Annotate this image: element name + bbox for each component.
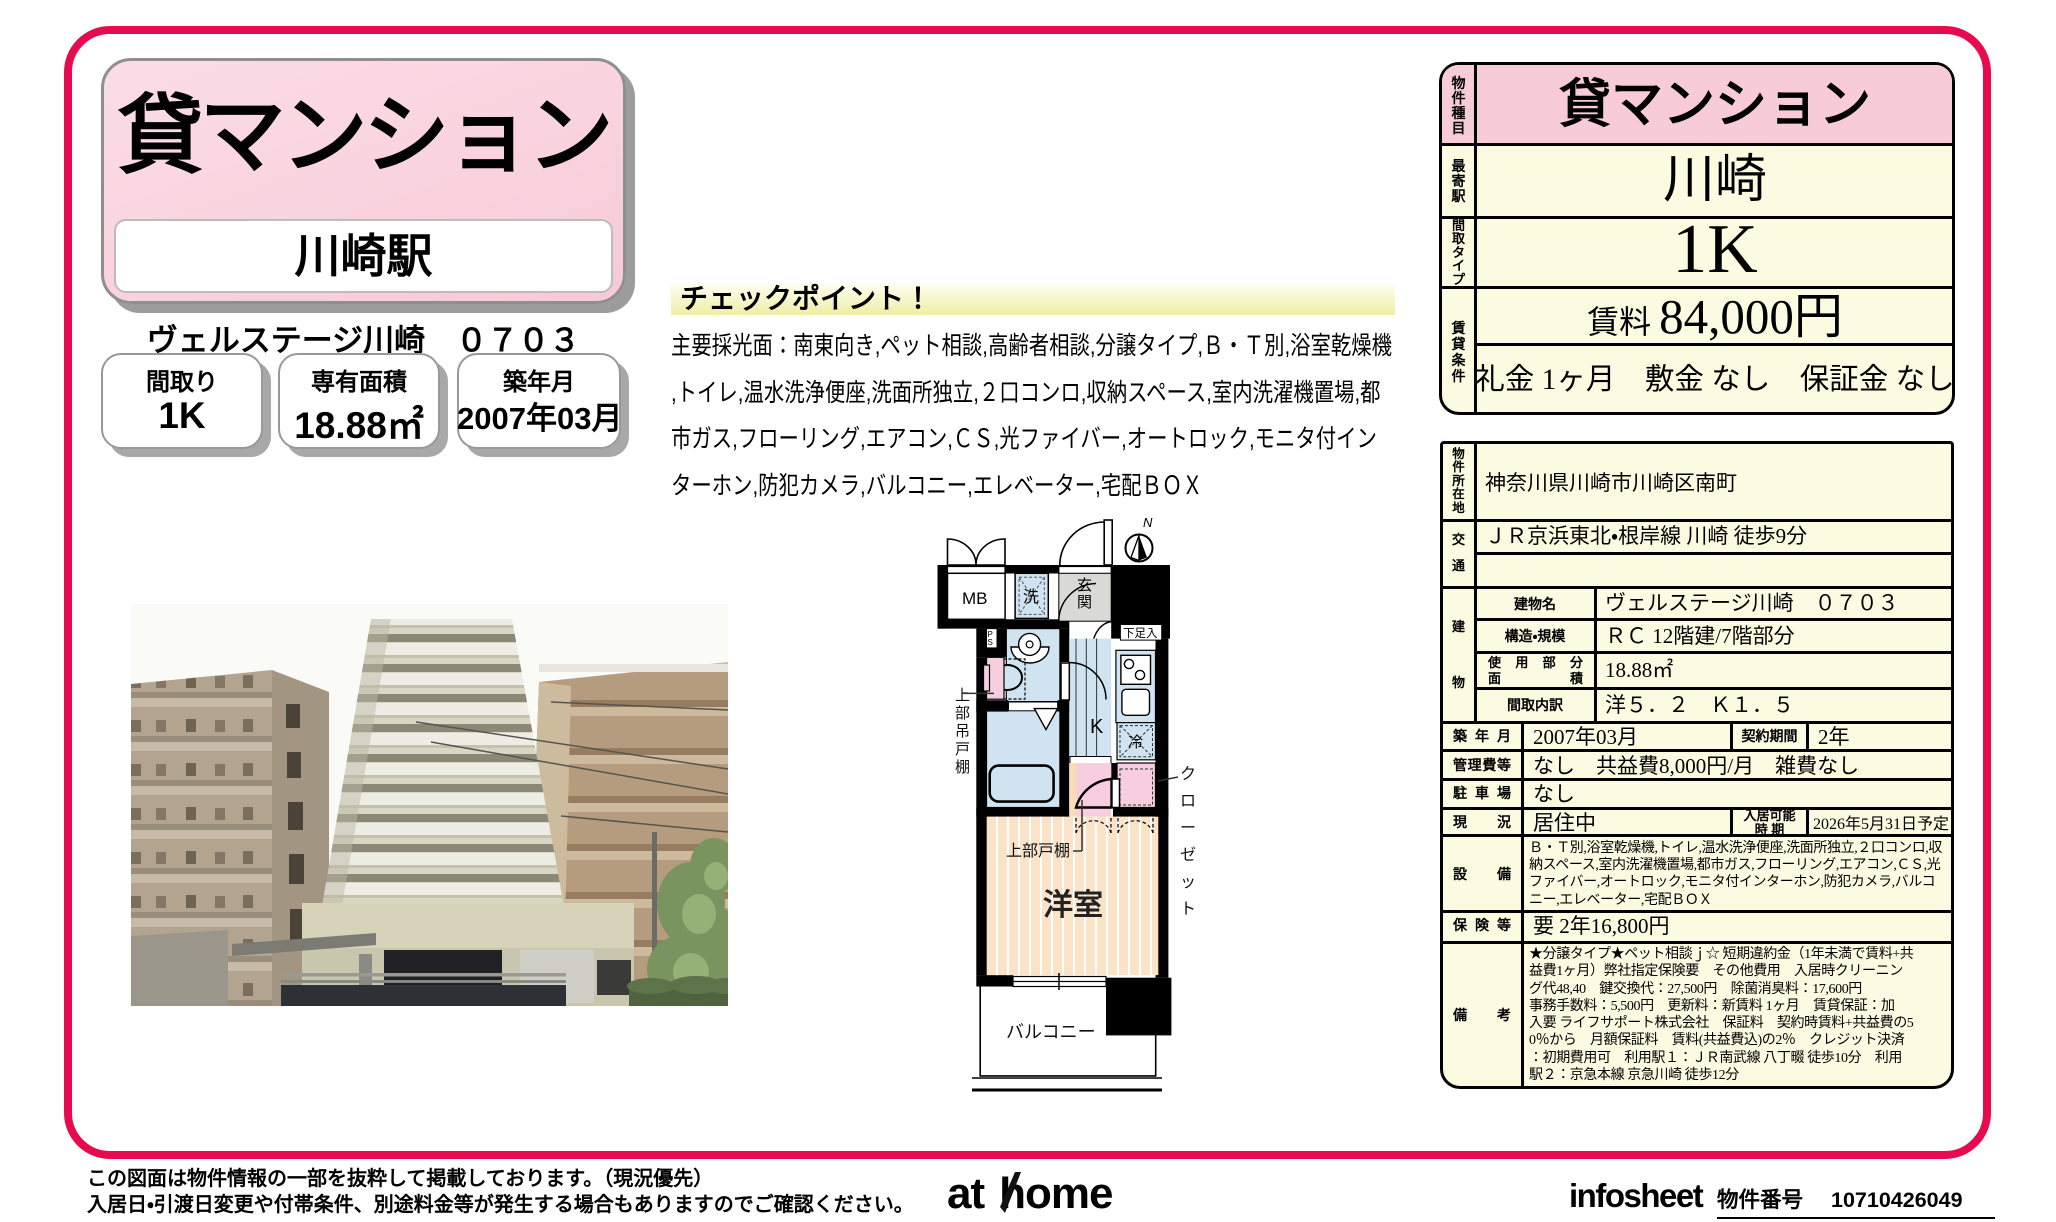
svg-text:S: S (988, 638, 993, 647)
svg-text:上部戸棚: 上部戸棚 (1006, 842, 1070, 860)
svg-text:ー: ー (1180, 820, 1196, 837)
svg-text:部: 部 (955, 705, 970, 722)
svg-text:N: N (1143, 515, 1153, 530)
svg-text:洗: 洗 (1023, 588, 1039, 606)
svg-text:戸: 戸 (955, 741, 970, 758)
svg-text:洋室: 洋室 (1043, 889, 1103, 922)
svg-text:下足入: 下足入 (1123, 628, 1158, 640)
svg-text:吊: 吊 (955, 723, 970, 740)
svg-text:上: 上 (955, 687, 970, 704)
svg-text:冷: 冷 (1128, 734, 1143, 751)
svg-text:ゼ: ゼ (1180, 846, 1196, 864)
svg-text:関: 関 (1077, 594, 1092, 611)
svg-text:K: K (1090, 716, 1104, 738)
svg-text:MB: MB (962, 589, 988, 608)
svg-text:ッ: ッ (1180, 874, 1196, 891)
svg-text:ク: ク (1180, 765, 1196, 783)
svg-text:バルコニー: バルコニー (1006, 1022, 1096, 1042)
svg-text:ロ: ロ (1180, 793, 1196, 810)
svg-text:棚: 棚 (955, 759, 970, 776)
svg-text:ト: ト (1180, 901, 1196, 918)
